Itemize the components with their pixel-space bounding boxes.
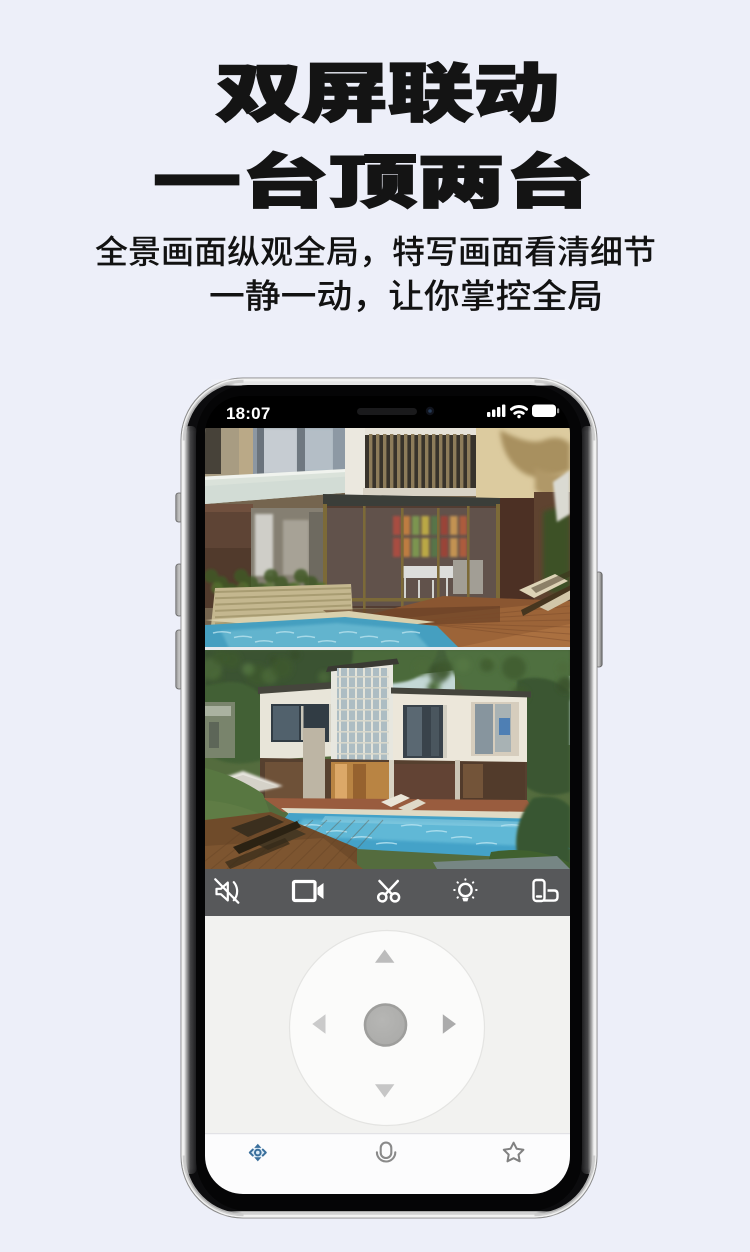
svg-text:18:07: 18:07 [226,404,270,423]
